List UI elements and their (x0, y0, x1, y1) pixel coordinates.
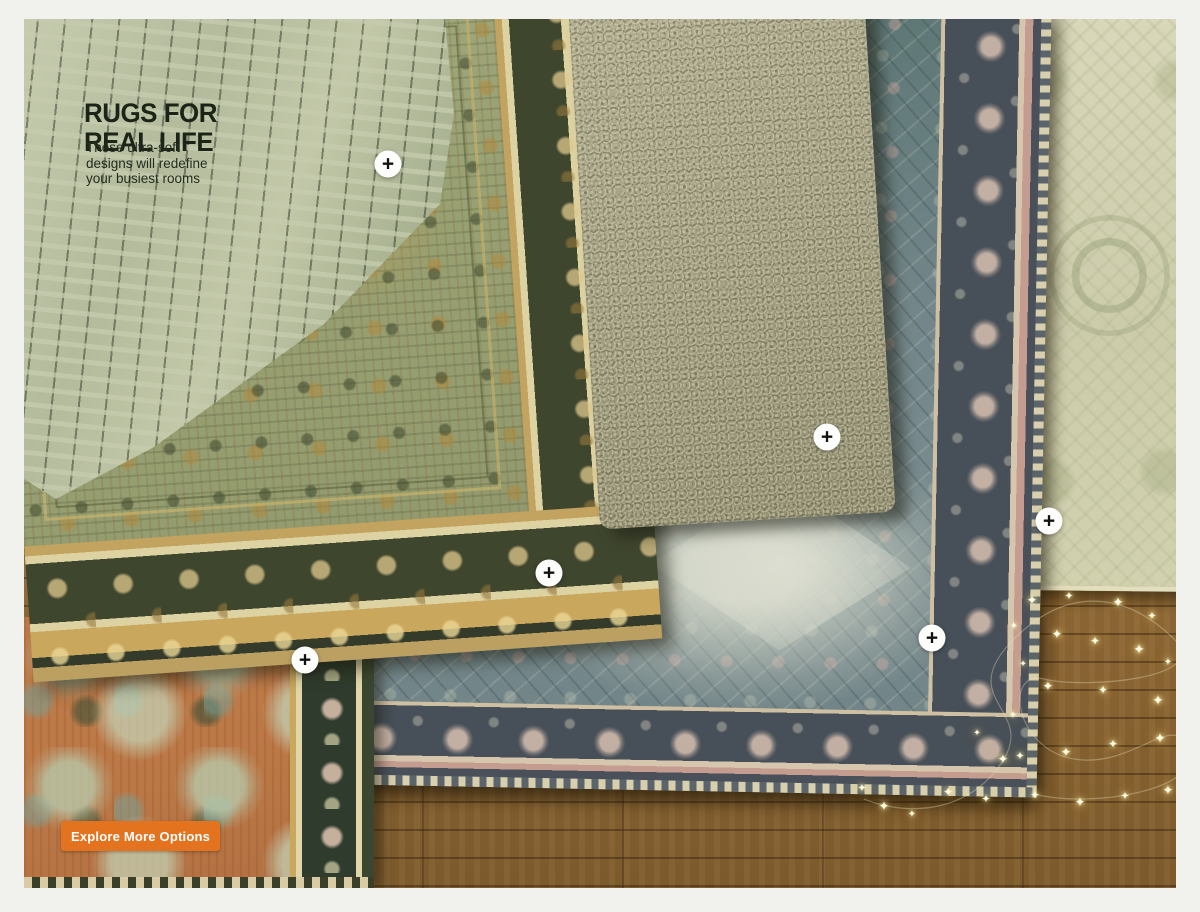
fairy-light-star: ✦ (1112, 595, 1124, 609)
fairy-light-star: ✦ (1098, 684, 1108, 696)
title-line-1: RUGS FOR (84, 99, 217, 128)
product-hotspot-plus-icon[interactable]: + (292, 647, 319, 674)
page-title: RUGS FOR REAL LIFE (84, 99, 286, 128)
fairy-light-star: ✦ (1133, 642, 1145, 656)
subtitle-line: your busiest rooms (86, 171, 200, 187)
fairy-light-star: ✦ (1061, 746, 1072, 759)
fairy-light-star: ✦ (943, 786, 953, 798)
rug-orange-binding (24, 877, 374, 888)
product-hotspot-plus-icon[interactable]: + (1036, 508, 1063, 535)
fairy-light-star: ✦ (1043, 680, 1054, 693)
product-hotspot-plus-icon[interactable]: + (375, 151, 402, 178)
fairy-light-star: ✦ (1163, 784, 1174, 797)
fairy-light-star: ✦ (1009, 711, 1017, 721)
product-hotspot-plus-icon[interactable]: + (919, 625, 946, 652)
fairy-light-star: ✦ (981, 795, 990, 806)
fairy-light-star: ✦ (998, 753, 1009, 766)
fairy-light-star: ✦ (1090, 635, 1100, 647)
fairy-light-star: ✦ (1027, 594, 1038, 607)
fairy-light-star: ✦ (1108, 738, 1118, 750)
fairy-light-star: ✦ (1015, 752, 1024, 763)
subtitle-line: These ultra-soft (86, 140, 180, 156)
fairy-light-star: ✦ (1064, 592, 1073, 603)
hero-text-block: RUGS FOR REAL LIFE These ultra-soft desi… (84, 99, 294, 171)
fairy-light-star: ✦ (1154, 731, 1166, 745)
explore-more-options-button[interactable]: Explore More Options (61, 821, 220, 851)
fairy-light-star: ✦ (1120, 792, 1129, 803)
fairy-light-star: ✦ (1164, 658, 1172, 668)
fairy-light-star: ✦ (1075, 796, 1086, 809)
hero-photo: ✦✦✦✦✦✦✦✦✦✦✦✦✦✦✦✦✦✦✦✦✦✦✦✦✦✦✦✦✦ RUGS FOR R… (24, 19, 1176, 888)
fairy-light-star: ✦ (908, 810, 916, 820)
product-hotspot-plus-icon[interactable]: + (814, 424, 841, 451)
rug-shag (568, 19, 895, 530)
fairy-light-star: ✦ (1030, 789, 1040, 801)
fairy-light-star: ✦ (879, 800, 890, 813)
fairy-light-star: ✦ (1010, 622, 1018, 632)
product-hotspot-plus-icon[interactable]: + (536, 560, 563, 587)
fairy-light-star: ✦ (1152, 693, 1164, 707)
fairy-light-star: ✦ (857, 784, 866, 795)
fairy-light-star: ✦ (1019, 660, 1027, 669)
fairy-light-star: ✦ (1147, 612, 1156, 623)
fairy-light-star: ✦ (1052, 628, 1063, 641)
fairy-light-star: ✦ (973, 729, 981, 738)
subtitle-line: designs will redefine (86, 156, 208, 172)
